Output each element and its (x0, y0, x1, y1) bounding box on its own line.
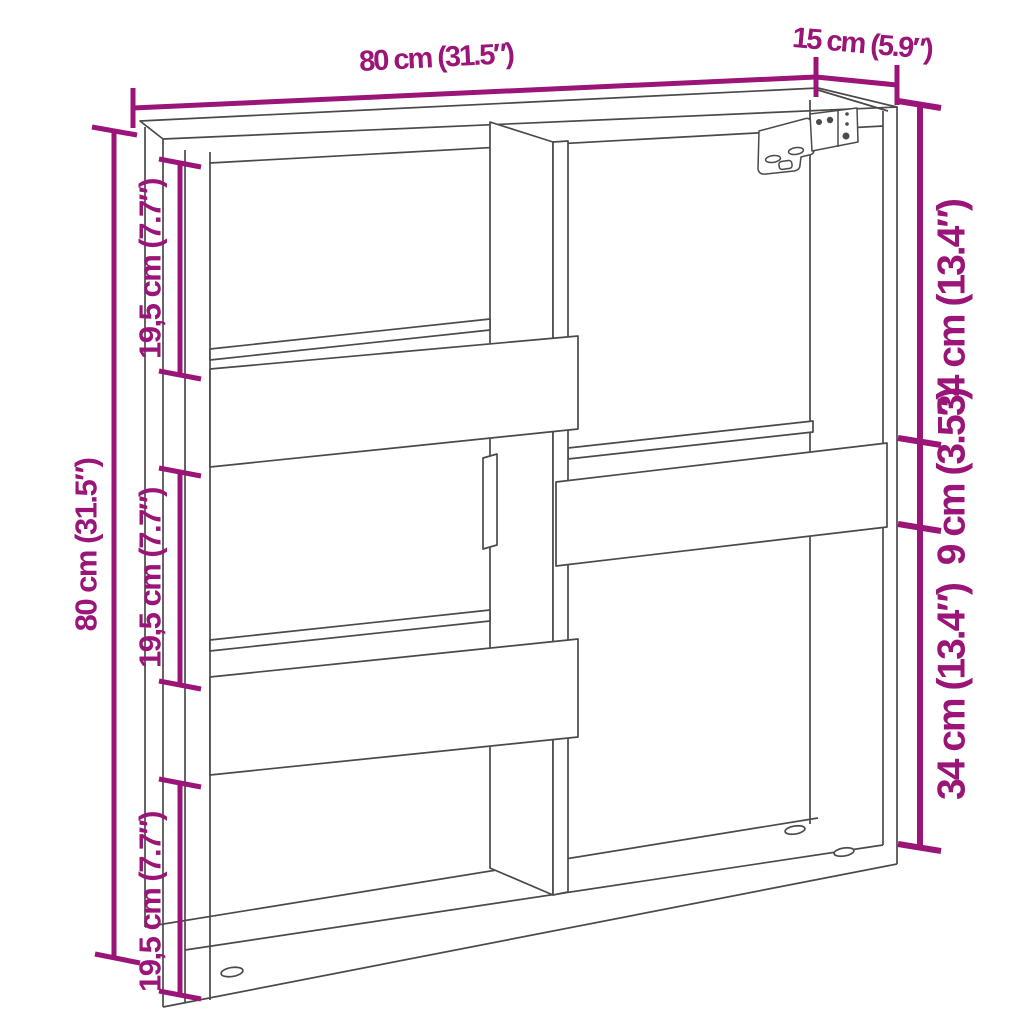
dim-label-right-middle: 9 cm (3.5″) (931, 388, 974, 566)
dim-label-right-bottom: 34 cm (13.4″) (931, 583, 974, 800)
divider-support-block (483, 454, 497, 549)
floor-hole-right-2 (833, 846, 854, 857)
dim-label-left-height: 80 cm (31.5″) (69, 458, 104, 631)
dim-label-left-inner-1: 19,5 cm (7.7″) (133, 179, 168, 359)
tick (898, 844, 941, 851)
cabinet-dimension-diagram: 80 cm (31.5″) 15 cm (5.9″) 80 cm (31.5″)… (0, 0, 1024, 1024)
bracket-hole-3 (845, 112, 849, 116)
dim-label-right-top: 34 cm (13.4″) (931, 199, 974, 416)
floor-hole-left (220, 966, 243, 978)
shelf-rail-right (568, 421, 813, 459)
bracket-hole-1 (816, 119, 822, 125)
dim-label-top-depth: 15 cm (5.9″) (791, 22, 934, 66)
dim-label-top-width: 80 cm (31.5″) (358, 38, 515, 78)
floor-back-edge (145, 818, 818, 927)
shelf-board-right (556, 443, 887, 566)
mounting-bracket (758, 108, 858, 174)
shelf-rail-lower-left (210, 610, 490, 651)
diagram-canvas: 80 cm (31.5″) 15 cm (5.9″) 80 cm (31.5″)… (0, 0, 1024, 1024)
bracket-hole-5 (843, 133, 850, 140)
bracket-hole-2 (827, 117, 833, 123)
center-divider-side-face (490, 122, 553, 895)
floor-hole-right-1 (784, 824, 805, 835)
dim-label-left-inner-3: 19,5 cm (7.7″) (133, 812, 168, 992)
dim-label-left-inner-2: 19,5 cm (7.7″) (133, 488, 168, 668)
bracket-hole-4 (845, 122, 849, 126)
bracket-slot-3 (779, 160, 793, 170)
tick (898, 101, 941, 108)
cabinet-drawing (140, 88, 897, 1007)
bracket-back-plate (810, 108, 858, 151)
